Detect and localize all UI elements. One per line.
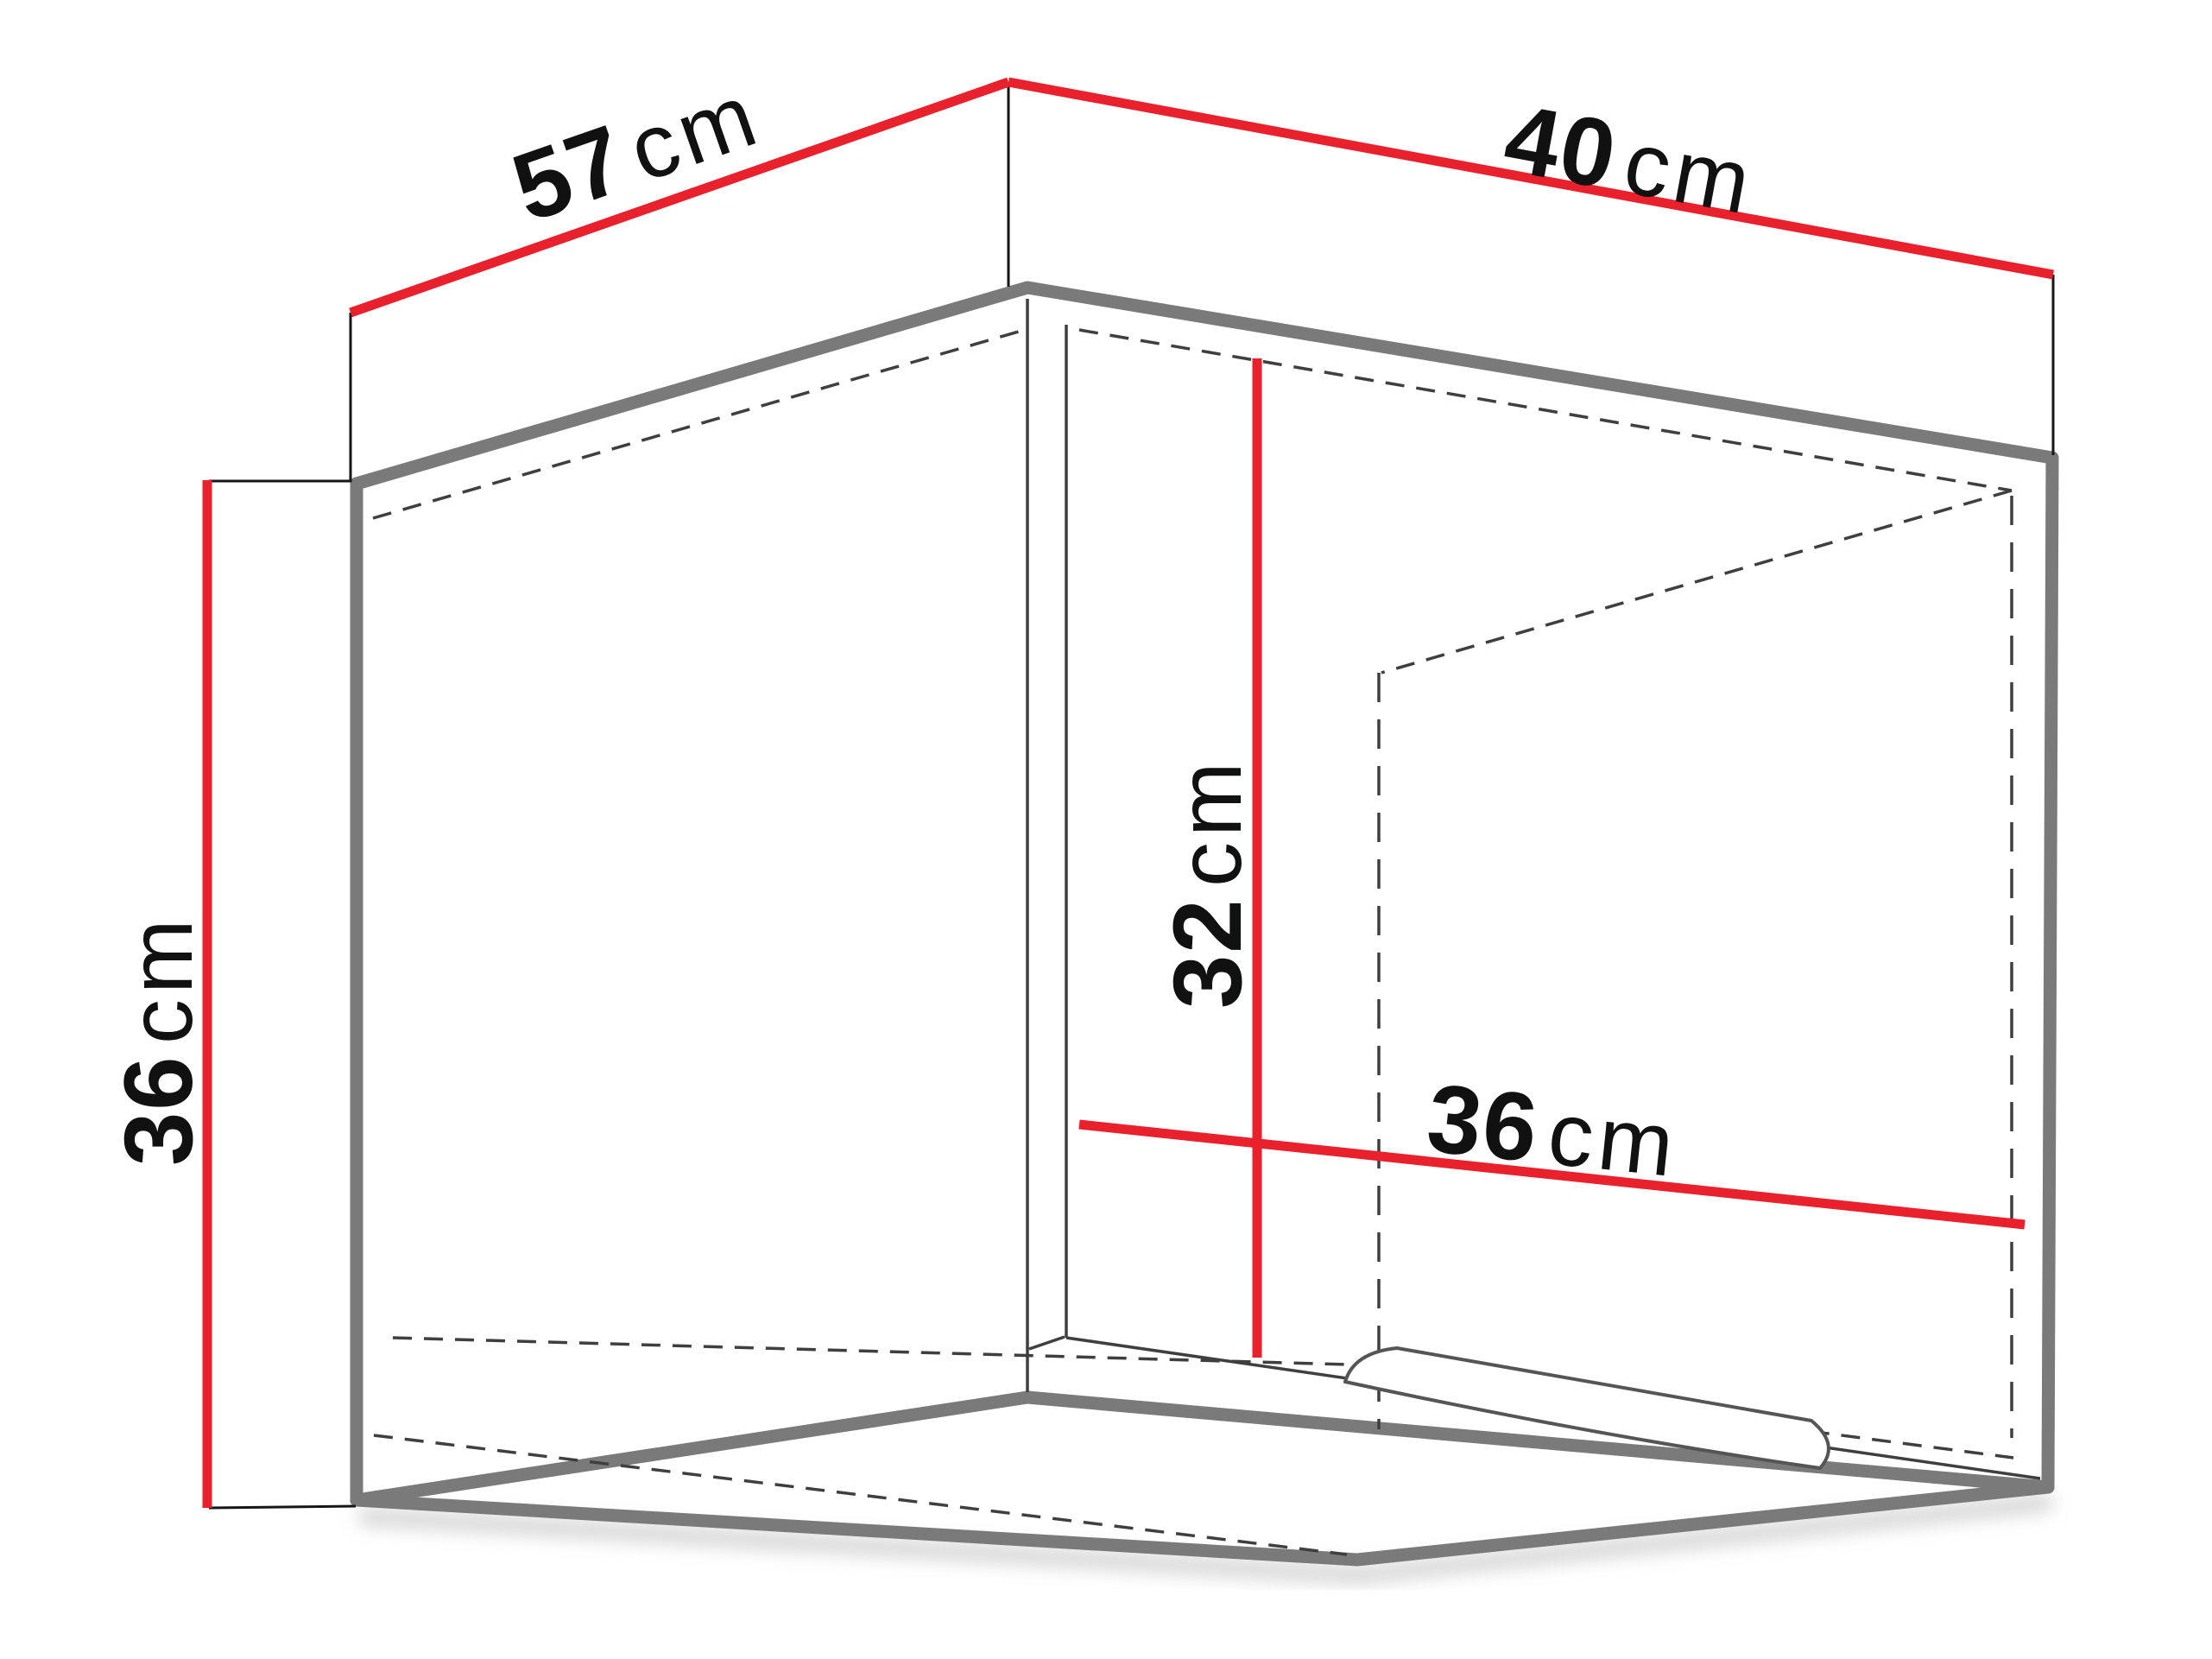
interior-top-right-edge: [1079, 330, 2012, 491]
interior-visible-edges: [1027, 299, 2040, 1479]
interior-ceiling-back-edge: [1381, 491, 2012, 673]
dim-40-unit: cm: [1617, 112, 1763, 234]
dim-label-36cm-interior: 36 cm: [1422, 1064, 1684, 1198]
cabinet-dimension-diagram: 57 cm 40 cm 36 cm 32 cm 36 cm: [0, 0, 2212, 1659]
dim-40-value: 40: [1497, 84, 1626, 210]
dim-label-32cm-interior: 32 cm: [1153, 757, 1261, 1009]
diagram-canvas: 57 cm 40 cm 36 cm 32 cm 36 cm: [0, 0, 2212, 1659]
interior-top-left-edge: [373, 331, 1021, 518]
dim-36d-value: 36: [1422, 1064, 1544, 1183]
dim-36h-unit: cm: [111, 914, 212, 1044]
left-bottom-extension-line: [209, 1506, 356, 1508]
extension-lines: [209, 82, 2053, 1508]
dim-36d-unit: cm: [1544, 1083, 1684, 1196]
interior-bottom-left-corner-edge: [1029, 1337, 1065, 1349]
dim-57-unit: cm: [616, 64, 773, 201]
dim-32-value: 32: [1153, 897, 1261, 1009]
dim-32-unit: cm: [1160, 757, 1261, 887]
dim-label-40cm: 40 cm: [1497, 84, 1764, 236]
dim-label-36cm-height: 36 cm: [104, 914, 212, 1166]
dim-36h-value: 36: [104, 1054, 212, 1166]
cabinet-right-edge: [2048, 458, 2052, 1487]
left-top-extension-line: [209, 313, 351, 481]
dimension-lines: [207, 82, 2053, 1508]
